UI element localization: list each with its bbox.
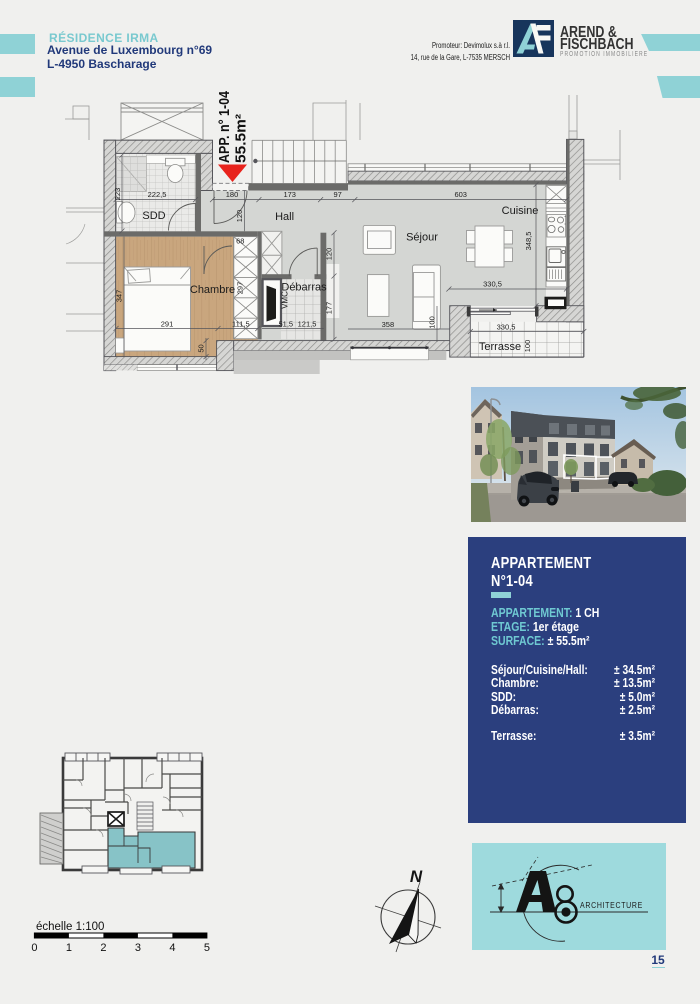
svg-text:100: 100 [523, 340, 532, 353]
svg-text:3: 3 [135, 942, 141, 954]
svg-text:330,5: 330,5 [497, 322, 516, 331]
svg-text:121,5: 121,5 [298, 319, 317, 328]
svg-text:330,5: 330,5 [483, 280, 502, 289]
svg-text:111,5: 111,5 [232, 319, 250, 328]
svg-text:Hall: Hall [275, 211, 294, 223]
svg-text:0: 0 [31, 942, 37, 954]
svg-text:Chambre: Chambre [190, 284, 235, 296]
svg-text:SDD: SDD [142, 210, 165, 222]
svg-text:348,5: 348,5 [524, 232, 533, 251]
svg-text:297: 297 [236, 282, 245, 295]
svg-text:68: 68 [236, 237, 244, 246]
svg-text:N: N [410, 868, 423, 886]
svg-text:4: 4 [169, 942, 175, 954]
svg-text:358: 358 [382, 320, 395, 329]
svg-text:55.5m²: 55.5m² [234, 114, 250, 163]
svg-text:APP. n° 1-04: APP. n° 1-04 [217, 91, 233, 163]
svg-text:51,5: 51,5 [278, 319, 293, 328]
svg-text:120: 120 [235, 210, 244, 223]
svg-text:223: 223 [113, 188, 122, 201]
svg-text:Terrasse: Terrasse [479, 341, 521, 353]
svg-text:120: 120 [325, 248, 334, 261]
svg-text:1: 1 [66, 942, 72, 954]
svg-text:VMC: VMC [281, 291, 290, 309]
svg-text:180: 180 [226, 190, 239, 199]
svg-text:291: 291 [161, 319, 174, 328]
svg-text:Cuisine: Cuisine [502, 205, 539, 217]
svg-text:2: 2 [100, 942, 106, 954]
svg-text:173: 173 [283, 190, 296, 199]
svg-text:5: 5 [204, 942, 210, 954]
svg-text:50: 50 [197, 344, 206, 352]
svg-text:Séjour: Séjour [406, 232, 438, 244]
svg-text:ARCHITECTURE: ARCHITECTURE [580, 901, 643, 910]
svg-text:97: 97 [334, 190, 342, 199]
svg-text:100: 100 [428, 316, 437, 329]
svg-text:347: 347 [115, 290, 124, 303]
svg-text:603: 603 [454, 190, 467, 199]
svg-text:222,5: 222,5 [148, 190, 167, 199]
svg-text:177: 177 [325, 302, 334, 315]
